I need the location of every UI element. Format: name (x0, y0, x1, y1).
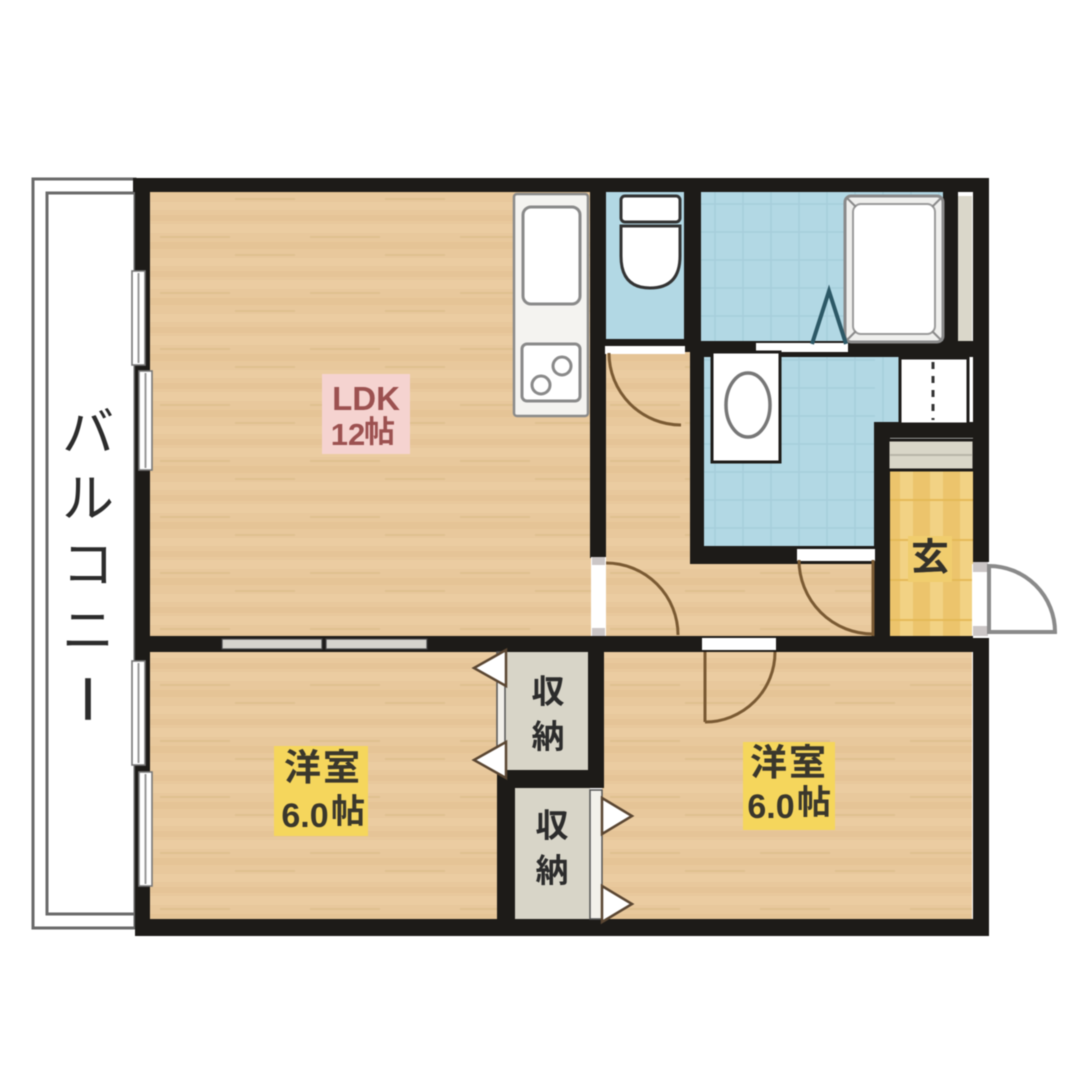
svg-text:6.0: 6.0 (747, 788, 794, 826)
svg-text:12: 12 (331, 417, 365, 452)
svg-text:LDK: LDK (332, 380, 400, 417)
svg-text:6.0: 6.0 (281, 797, 328, 835)
